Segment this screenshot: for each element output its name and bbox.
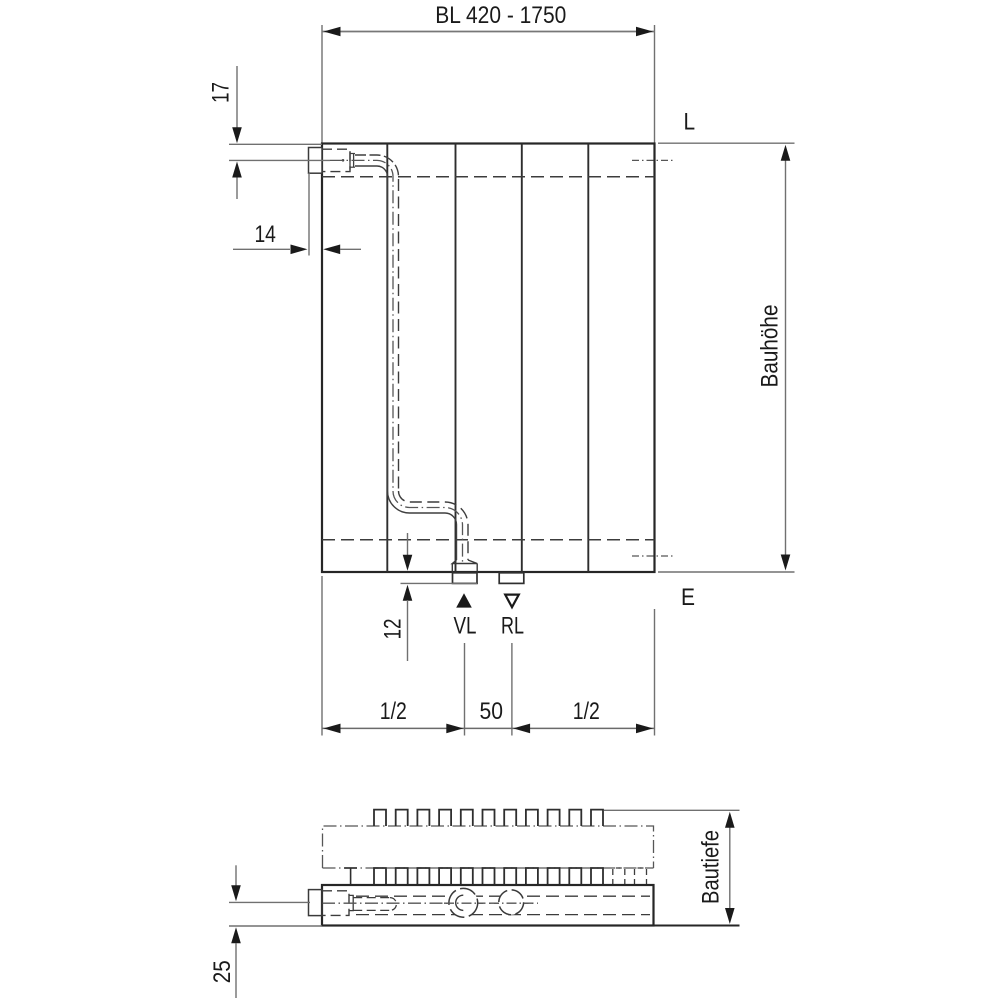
svg-text:25: 25 xyxy=(209,960,236,983)
svg-text:L: L xyxy=(684,108,696,135)
svg-text:Bautiefe: Bautiefe xyxy=(698,830,725,904)
svg-text:RL: RL xyxy=(501,613,524,640)
svg-text:Bauhöhe: Bauhöhe xyxy=(756,305,783,388)
svg-text:E: E xyxy=(681,584,695,611)
svg-text:50: 50 xyxy=(480,698,504,725)
svg-text:BL 420 - 1750: BL 420 - 1750 xyxy=(435,2,566,29)
svg-text:VL: VL xyxy=(454,613,477,640)
svg-text:1/2: 1/2 xyxy=(573,698,600,725)
svg-text:17: 17 xyxy=(207,82,234,103)
svg-text:14: 14 xyxy=(254,221,276,248)
svg-text:12: 12 xyxy=(379,619,406,640)
svg-text:1/2: 1/2 xyxy=(380,698,407,725)
